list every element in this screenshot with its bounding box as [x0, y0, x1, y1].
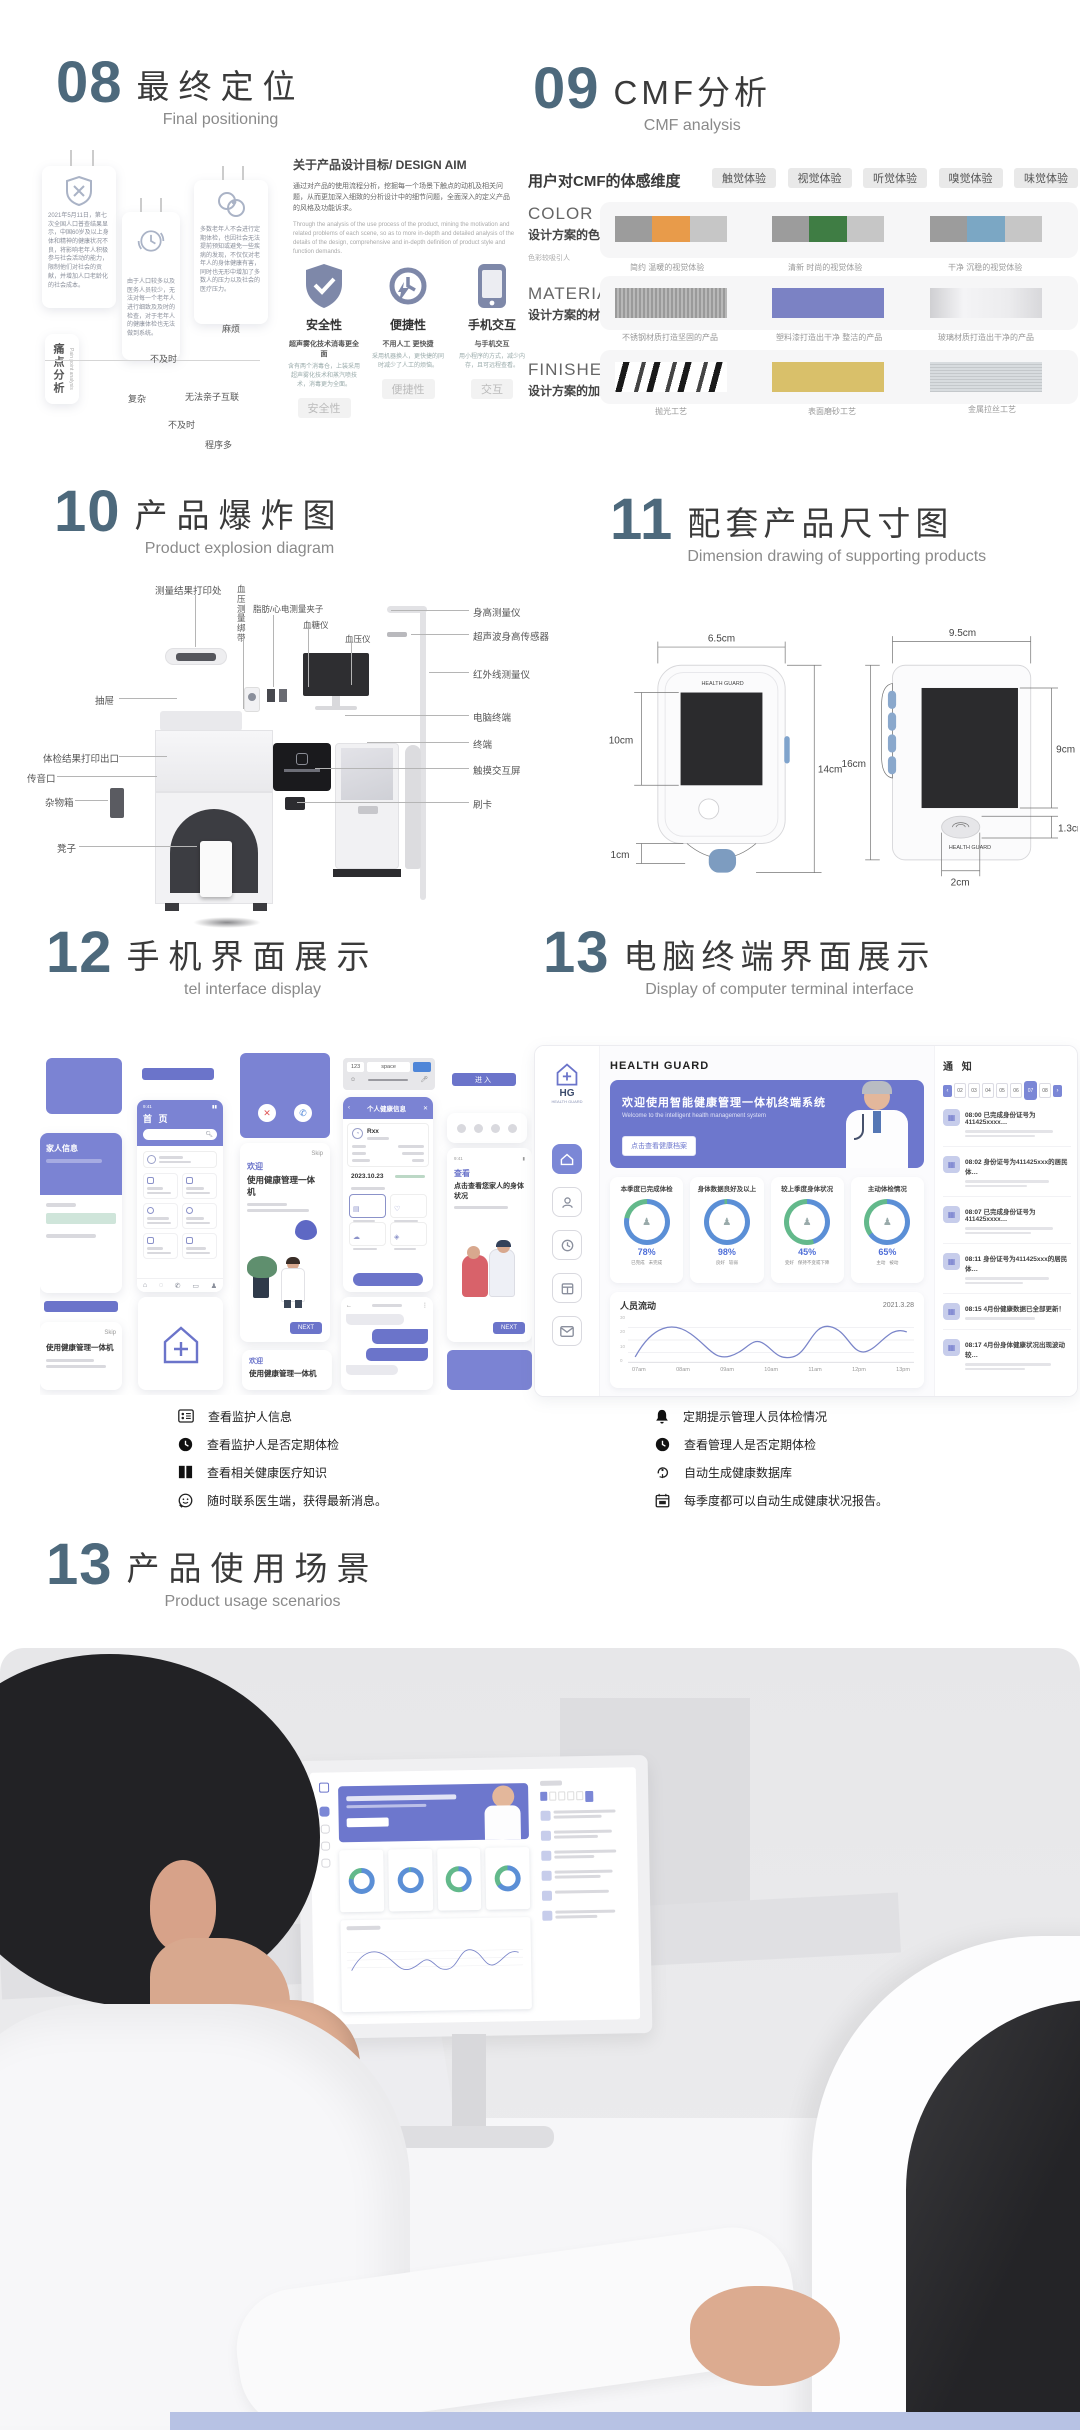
explode-label: 抽屉 — [95, 693, 114, 707]
material-plastic — [772, 288, 884, 318]
sidebar-history[interactable] — [552, 1230, 582, 1260]
chat-icon[interactable]: ◌ — [159, 1282, 163, 1289]
section-09-title: CMF分析 — [614, 66, 771, 114]
auto-sync-icon — [655, 1465, 670, 1480]
phone1-family-screen[interactable]: 家人信息 — [40, 1133, 122, 1293]
color-swatch-1 — [615, 216, 727, 242]
sidebar-users[interactable] — [552, 1187, 582, 1217]
banner-doctor — [840, 1084, 914, 1168]
placeholder-line — [46, 1203, 76, 1207]
dash-sidebar: HG HEALTH GUARD — [535, 1046, 599, 1396]
sundries-box — [110, 788, 124, 818]
stat-value: 45% — [775, 1247, 840, 1257]
notice-calendar-icon: ▦ — [943, 1339, 960, 1356]
dim-b-fp-width: 2cm — [951, 877, 970, 888]
pain-analysis-zh: 痛点分析 — [50, 343, 66, 395]
dim-b-height: 16cm — [842, 759, 866, 770]
placeholder-line — [147, 1252, 171, 1255]
menu-cell[interactable] — [182, 1203, 217, 1229]
color-caption: 清新 时尚的视觉体验 — [788, 262, 862, 273]
placeholder-line — [554, 1855, 594, 1858]
phone4-chat-screen[interactable]: ←⋮ — [341, 1297, 433, 1390]
material-steel — [615, 288, 727, 318]
bottom-strip — [170, 2412, 1080, 2430]
main-unit-top — [155, 730, 273, 792]
cmf-chip: 嗅觉体验 — [939, 168, 1003, 188]
next-button[interactable]: NEXT — [290, 1322, 322, 1334]
hangup-button[interactable]: ✕ — [258, 1104, 276, 1122]
dash-notifications: 通 知 ‹ 02 03 04 05 06 07 08 › ▦ 08:00 已完成… — [935, 1046, 1078, 1396]
notice-item[interactable]: ▦ 08:07 已完成身份证号为411425xxxx… — [943, 1197, 1071, 1244]
explode-label: 血糖仪 — [303, 619, 329, 631]
date-chip-row: ‹ 02 03 04 05 06 07 08 › — [943, 1081, 1071, 1100]
legend-text: 自动生成健康数据库 — [684, 1464, 792, 1481]
feature-desc: 采用机器换人，更快捷的同时减少了人工的烦恼。 — [372, 353, 444, 371]
status-icons: ▮▮ — [212, 1104, 217, 1110]
swatch-lightgray — [690, 216, 727, 242]
person-glyph: ♟ — [784, 1199, 830, 1245]
home-icon — [560, 1153, 574, 1166]
more-icon[interactable]: ⋮ — [422, 1302, 428, 1309]
swatch-blue — [967, 216, 1004, 242]
chevron-right-icon[interactable]: › — [1053, 1085, 1062, 1097]
section-08-subtitle: Final positioning — [137, 111, 305, 129]
chevron-left-icon[interactable]: ‹ — [943, 1085, 952, 1097]
search-bar[interactable]: 🔍︎ — [143, 1129, 217, 1140]
person-glyph: ♟ — [864, 1199, 910, 1245]
section-13b-title: 产品使用场景 — [127, 1542, 379, 1590]
placeholder-line — [554, 1850, 616, 1854]
dash-main: HEALTH GUARD 欢迎使用智能健康管理一体机终端系统 Welcome t… — [599, 1046, 935, 1396]
phone-icon[interactable]: ✆ — [175, 1282, 181, 1290]
placeholder-line — [352, 1152, 366, 1155]
notice-item[interactable]: ▦ 08:00 已完成身份证号为411425xxxx… — [943, 1100, 1071, 1147]
menu-cell[interactable] — [143, 1173, 178, 1199]
mini-stats — [339, 1847, 530, 1912]
placeholder-line — [186, 1192, 210, 1195]
dot — [474, 1124, 483, 1133]
dash-banner: 欢迎使用智能健康管理一体机终端系统 Welcome to the intelli… — [610, 1080, 924, 1168]
notice-list: ▦ 08:00 已完成身份证号为411425xxxx… ▦ 08:02 身份证号… — [943, 1100, 1071, 1379]
person-glyph: ♟ — [704, 1199, 750, 1245]
design-aim-en: Through the analysis of the use process … — [293, 221, 515, 258]
profile-submit-button[interactable] — [353, 1273, 423, 1286]
phone2-splash-screen[interactable] — [138, 1297, 223, 1390]
placeholder-line — [346, 1794, 456, 1801]
section-13b-subtitle: Product usage scenarios — [127, 1593, 379, 1611]
menu-cell[interactable] — [182, 1233, 217, 1259]
stat-card: 主动体检情况 ♟ 65% 主动被动 — [851, 1177, 924, 1283]
placeholder-line — [46, 1359, 94, 1362]
mini-nav — [320, 1825, 329, 1834]
placeholder-line — [147, 1187, 163, 1190]
folder-icon: ▤ — [353, 1206, 360, 1213]
legend-text: 查看监护人是否定期体检 — [207, 1436, 339, 1453]
notice-time: 08:07 — [965, 1209, 982, 1216]
stat-ring: ♟ — [864, 1199, 910, 1245]
menu-icon — [186, 1177, 193, 1184]
phone3-welcome-screen[interactable]: Skip 欢迎 使用健康管理一体机 NEXT — [240, 1143, 330, 1342]
callout-line — [75, 800, 108, 801]
phone2-top-button[interactable] — [142, 1068, 214, 1080]
placeholder-line — [351, 1187, 385, 1190]
placeholder-line — [398, 1145, 424, 1148]
key-123[interactable]: 123 — [347, 1062, 364, 1072]
avatar: ◔ — [352, 1128, 363, 1139]
chat-bubble-right — [366, 1348, 428, 1361]
monitor-stand — [332, 696, 340, 706]
mini-chip — [576, 1791, 583, 1800]
clock-icon — [178, 1437, 193, 1452]
user-icon — [561, 1196, 574, 1209]
doctor-hair — [286, 1257, 300, 1264]
stat-value: 98% — [694, 1247, 759, 1257]
finished-caption: 抛光工艺 — [655, 406, 687, 417]
terminal-text-line — [284, 769, 320, 772]
callout-line — [273, 615, 274, 687]
placeholder-line — [147, 1217, 169, 1220]
x-label: 11am — [808, 1367, 821, 1373]
legend-1: 已完成 — [631, 1260, 645, 1266]
house-cross-icon — [554, 1062, 580, 1086]
home-icon[interactable]: ⌂ — [143, 1282, 147, 1289]
section-09-header: 09 CMF分析 CMF analysis — [533, 64, 771, 135]
section-10-subtitle: Product explosion diagram — [135, 540, 345, 558]
pain-card-3-text: 多数老年人不会进行定期体检，也因社会无法提前预知或避免一些疾病的发现，不仅仅对老… — [200, 226, 262, 294]
placeholder-line — [540, 1780, 562, 1785]
id-card-icon — [178, 1409, 194, 1423]
doctor-coat — [281, 1268, 305, 1302]
mini-doctor-coat — [484, 1805, 521, 1840]
swatch-green — [809, 216, 846, 242]
placeholder-line — [247, 1203, 287, 1206]
placeholder-line — [965, 1135, 1035, 1138]
date-chip[interactable]: 03 — [968, 1083, 980, 1098]
plant-leaves — [247, 1256, 277, 1278]
side-cabinet — [335, 743, 399, 869]
phone3-call-panel: ✕ ✆ — [240, 1053, 330, 1138]
date-chip-active[interactable]: 07 — [1024, 1081, 1037, 1100]
placeholder-line — [965, 1368, 1025, 1371]
explode-label: 红外线测量仪 — [473, 667, 530, 681]
monitor-stand — [452, 2034, 486, 2130]
phone2-home-screen[interactable]: 9:41▮▮ 首 页 🔍︎ ⌂◌✆▭♟ — [137, 1100, 223, 1292]
enter-button[interactable]: 进入 — [452, 1073, 516, 1086]
date-chip[interactable]: 02 — [954, 1083, 966, 1098]
explode-label: 身高测量仪 — [473, 605, 521, 619]
close-icon[interactable]: ✕ — [423, 1105, 428, 1112]
stat-card: 本季度已完成体检 ♟ 78% 已完成未完成 — [610, 1177, 683, 1283]
notice-item[interactable]: ▦ 08:15 4月份健康数据已全部更新！ — [943, 1294, 1071, 1330]
sidebar-mail[interactable] — [552, 1316, 582, 1346]
stat-ring: ♟ — [704, 1199, 750, 1245]
glucometer-dial — [248, 693, 256, 701]
sidebar-home[interactable] — [552, 1144, 582, 1174]
ultrasonic-sensor — [387, 632, 407, 637]
svg-text:HEALTH GUARD: HEALTH GUARD — [949, 845, 991, 851]
mini-button — [347, 1817, 389, 1827]
stool — [200, 841, 232, 897]
color-caption: 简约 温暖的视觉体验 — [630, 262, 704, 273]
placeholder-line — [965, 1317, 1035, 1320]
menu-cell[interactable] — [143, 1203, 178, 1229]
callout-line — [57, 776, 157, 777]
mini-notices — [534, 1775, 634, 2015]
heart-icon — [295, 1220, 317, 1240]
explode-label: 血压仪 — [345, 633, 371, 645]
placeholder-line — [555, 1890, 609, 1894]
dim-a-width: 6.5cm — [708, 634, 735, 645]
finished-caption: 表面磨砂工艺 — [808, 406, 856, 417]
phone4-keyboard[interactable]: 123 space ☺ 🎤︎ — [343, 1058, 435, 1090]
family-info-title: 家人信息 — [46, 1143, 116, 1154]
call-button[interactable]: ✆ — [294, 1104, 312, 1122]
section-11-title: 配套产品尺寸图 — [687, 497, 986, 545]
explode-label: 凳子 — [57, 841, 76, 855]
chart-title: 人员流动 — [620, 1299, 656, 1312]
calendar-icon — [561, 1282, 574, 1295]
placeholder-line — [555, 1875, 601, 1878]
notice-text: 4月份健康数据已全部更新！ — [983, 1306, 1065, 1313]
shield-icon: ◈ — [394, 1234, 399, 1241]
swatch-lightgray — [1005, 216, 1042, 242]
color-caption: 干净 沉稳的视觉体验 — [948, 262, 1022, 273]
mini-logo — [319, 1783, 329, 1793]
mail-icon[interactable]: ▭ — [192, 1282, 199, 1290]
mini-chart-card — [340, 1917, 532, 2012]
monitor-base — [384, 2126, 554, 2148]
legend-text: 查看监护人信息 — [208, 1408, 292, 1425]
placeholder-line — [965, 1130, 1053, 1133]
mini-chip — [567, 1791, 574, 1800]
shield-check-icon — [302, 262, 346, 310]
mini-notice-icon — [541, 1851, 551, 1861]
section-11-header: 11 配套产品尺寸图 Dimension drawing of supporti… — [610, 495, 986, 566]
home-indicator — [368, 1079, 408, 1081]
doctor-hair — [862, 1081, 892, 1094]
section-12-header: 12 手机界面展示 tel interface display — [46, 928, 379, 999]
section-12-number: 12 — [46, 928, 113, 977]
placeholder-line — [394, 1248, 416, 1251]
phone5-purple-block — [447, 1350, 532, 1390]
person-glyph: ♟ — [624, 1199, 670, 1245]
placeholder-line — [346, 1804, 426, 1808]
menu-cell[interactable] — [143, 1233, 178, 1259]
mic-icon[interactable]: 🎤︎ — [420, 1076, 428, 1083]
stat-label: 较上季度身体状况 — [775, 1183, 840, 1193]
feature-desc: 含有两个消毒仓，上装采用超声雾化技术和蒸汽喷技术，消毒更为全面。 — [288, 363, 360, 390]
unit-foot — [165, 903, 179, 911]
date-chip[interactable]: 05 — [996, 1083, 1008, 1098]
notice-item[interactable]: ▦ 08:02 身份证号为411425xxx的居民体… — [943, 1147, 1071, 1197]
user-icon[interactable]: ♟ — [211, 1282, 217, 1290]
scatter-tag: 不及时 — [150, 352, 177, 365]
pain-analysis-en: Pain point analysis — [68, 348, 74, 390]
avatar — [147, 1155, 156, 1164]
stat-label: 主动体检情况 — [855, 1183, 920, 1193]
dot — [491, 1124, 500, 1133]
section-09-number: 09 — [533, 64, 600, 113]
dim-b-fp-height: 1.3cm — [1058, 824, 1078, 835]
section-10-title: 产品爆炸图 — [135, 489, 345, 537]
doctor-figure — [489, 1249, 515, 1297]
date-chip[interactable]: 04 — [982, 1083, 994, 1098]
y-tick: 0 — [620, 1358, 625, 1363]
x-label: 09am — [720, 1367, 734, 1373]
legend-1: 主动 — [876, 1260, 885, 1266]
placeholder-line — [965, 1227, 1053, 1230]
profile-row[interactable] — [143, 1151, 217, 1168]
placeholder-line — [352, 1159, 370, 1162]
placeholder-line — [186, 1252, 210, 1255]
heart-icon: ♡ — [394, 1206, 400, 1213]
placeholder-line — [555, 1910, 615, 1914]
next-button[interactable]: NEXT — [493, 1322, 525, 1334]
placeholder-line — [554, 1810, 616, 1814]
chat-bubble-right — [372, 1329, 428, 1344]
key-space[interactable]: space — [367, 1062, 410, 1072]
section-13b-number: 13 — [46, 1540, 113, 1589]
callout-line — [79, 846, 197, 847]
placeholder-line — [247, 1209, 309, 1212]
bottom-nav[interactable]: ⌂◌✆▭♟ — [137, 1278, 223, 1292]
dim-a-height: 14cm — [818, 765, 842, 776]
placeholder-line — [147, 1247, 163, 1250]
cmf-dim-label: 用户对CMF的体感维度 — [528, 170, 681, 191]
feature-tag: 安全性 — [298, 398, 351, 418]
mini-doctor-head — [492, 1785, 514, 1807]
welcome-title: 欢迎 — [247, 1161, 323, 1172]
info-card[interactable]: ▤ — [349, 1194, 386, 1218]
placeholder-line — [412, 1159, 424, 1162]
x-label: 10am — [764, 1367, 778, 1373]
mini-notice-icon — [542, 1911, 552, 1921]
placeholder-line — [367, 1137, 389, 1140]
notice-calendar-icon: ▦ — [943, 1253, 960, 1270]
skip-label[interactable]: Skip — [46, 1330, 116, 1336]
placeholder-line — [554, 1815, 602, 1818]
sidebar-calendar[interactable] — [552, 1273, 582, 1303]
phone1-bottom-screen[interactable]: Skip 使用健康管理一体机 — [40, 1322, 122, 1390]
mini-nav — [321, 1859, 330, 1868]
date-chip[interactable]: 06 — [1010, 1083, 1022, 1098]
callout-line — [308, 629, 309, 687]
status-time: 9:41 — [143, 1104, 152, 1110]
bottle-column — [405, 745, 421, 869]
scatter-tag: 程序多 — [205, 438, 232, 451]
placeholder-line — [965, 1232, 1031, 1235]
notice-text: 身份证号为411425xxx的居民体… — [965, 1256, 1067, 1273]
x-label: 12pm — [852, 1367, 866, 1373]
legend-text: 查看管理人是否定期体检 — [684, 1436, 816, 1453]
notice-time: 08:11 — [965, 1256, 981, 1263]
x-label: 13pm — [896, 1367, 910, 1373]
explode-label: 触摸交互屏 — [473, 763, 521, 777]
menu-cell[interactable] — [182, 1173, 217, 1199]
design-aim-zh: 通过对产品的使用流程分析，挖掘每一个场景下触点的动机及相关问题，从而更加深入细致… — [293, 181, 515, 215]
skip-label[interactable]: Skip — [247, 1151, 323, 1157]
phone4-profile-screen[interactable]: ‹ 个人健康信息 ✕ ◔ Rxx 2023.10.23 ▤ ♡ — [343, 1097, 433, 1292]
finish-brushed — [930, 362, 1042, 392]
cmf-chip: 触觉体验 — [712, 168, 776, 188]
pain-card-1: 2021年5月11日，第七次全国人口普查结果显示，中国60岁及以上身体和精神的健… — [42, 166, 116, 308]
stat-value: 78% — [614, 1247, 679, 1257]
placeholder-line — [965, 1180, 1049, 1183]
placeholder-line-green — [395, 1175, 425, 1178]
section-13-header: 13 电脑终端界面展示 Display of computer terminal… — [543, 928, 936, 999]
welcome-title: 欢迎 — [249, 1356, 325, 1366]
pain-card-2-text: 由于人口较多以及医务人员较少，无法对每一个老年人进行细致及及时的检查，对于老年人… — [127, 278, 175, 339]
bell-icon — [655, 1409, 669, 1424]
key-send[interactable] — [413, 1062, 431, 1072]
view-title: 查看 — [454, 1168, 525, 1179]
pin — [92, 150, 94, 166]
back-icon[interactable]: ← — [346, 1303, 352, 1309]
input-field[interactable] — [46, 1213, 116, 1224]
notice-item[interactable]: ▦ 08:17 4月份身体健康状况出现波动较… — [943, 1330, 1071, 1379]
pin — [70, 150, 72, 166]
logo-small: HEALTH GUARD — [535, 1099, 599, 1104]
swatch-lightgray — [847, 216, 884, 242]
info-card[interactable]: ☁ — [349, 1222, 386, 1246]
placeholder-line — [46, 1159, 102, 1163]
monitor-base — [315, 706, 357, 710]
material-caption: 不锈钢材质打造坚固的产品 — [622, 332, 718, 343]
scatter-tag: 不及时 — [168, 418, 195, 431]
cloud-icon: ☁ — [353, 1234, 360, 1241]
mini-line-chart — [347, 1927, 524, 1990]
swatch-orange — [652, 216, 689, 242]
card-reader — [285, 797, 305, 810]
cmf-chip: 听觉体验 — [863, 168, 927, 188]
callout-line — [119, 698, 177, 699]
dim-b-width: 9.5cm — [949, 628, 976, 639]
info-card[interactable]: ♡ — [390, 1194, 427, 1218]
emoji-icon[interactable]: ☺ — [350, 1077, 356, 1083]
woman-figure — [462, 1255, 488, 1297]
feature-caption: 不用人工 更快捷 — [372, 339, 444, 349]
x-label: 07am — [632, 1367, 646, 1373]
phone5-dots-panel — [447, 1113, 527, 1143]
legend-left: 查看监护人信息 查看监护人是否定期体检 查看相关健康医疗知识 随时联系医生端，获… — [178, 1402, 538, 1514]
feature-safety: 安全性 超声雾化技术消毒更全面 含有两个消毒仓，上装采用超声雾化技术和蒸汽喷技术… — [288, 262, 360, 418]
placeholder-line — [353, 1248, 377, 1251]
welcome-sub: 使用健康管理一体机 — [249, 1368, 325, 1379]
placeholder-line — [554, 1830, 612, 1834]
pain-card-3: 多数老年人不会进行定期体检，也因社会无法提前预知或避免一些疾病的发现，不仅仅对老… — [194, 180, 268, 324]
house-cross-icon — [159, 1322, 203, 1366]
family-illustration — [454, 1217, 525, 1303]
contact-doctor-icon — [178, 1493, 193, 1508]
legend-right: 定期提示管理人员体检情况 查看管理人是否定期体检 自动生成健康数据库 每季度都可… — [655, 1402, 1015, 1514]
poster-canvas: 08 最终定位 Final positioning 2021年5月11日，第七次… — [0, 0, 1080, 2430]
material-caption: 玻璃材质打造出干净的产品 — [938, 332, 1034, 343]
molecule-icon — [214, 188, 248, 222]
search-icon: 🔍︎ — [205, 1131, 213, 1138]
info-card[interactable]: ◈ — [390, 1222, 427, 1246]
phone1-button[interactable] — [44, 1301, 118, 1312]
doctor-hair — [496, 1240, 511, 1247]
banner-button[interactable]: 点击查看健康档案 — [622, 1136, 696, 1156]
back-icon[interactable]: ‹ — [348, 1105, 350, 1111]
phone5-view-screen[interactable]: 9:41▮ 查看 点击查看您家人的身体状况 NEXT — [447, 1148, 532, 1342]
mail-icon — [560, 1326, 574, 1337]
status-time: 9:41 — [454, 1156, 463, 1162]
notice-item[interactable]: ▦ 08:11 身份证号为411425xxx的居民体… — [943, 1244, 1071, 1294]
date-chip[interactable]: 08 — [1039, 1083, 1051, 1098]
phone3-bottom-screen[interactable]: 欢迎 使用健康管理一体机 — [242, 1350, 332, 1390]
pain-card-2: 由于人口较多以及医务人员较少，无法对每一个老年人进行细致及及时的检查，对于老年人… — [122, 212, 180, 360]
